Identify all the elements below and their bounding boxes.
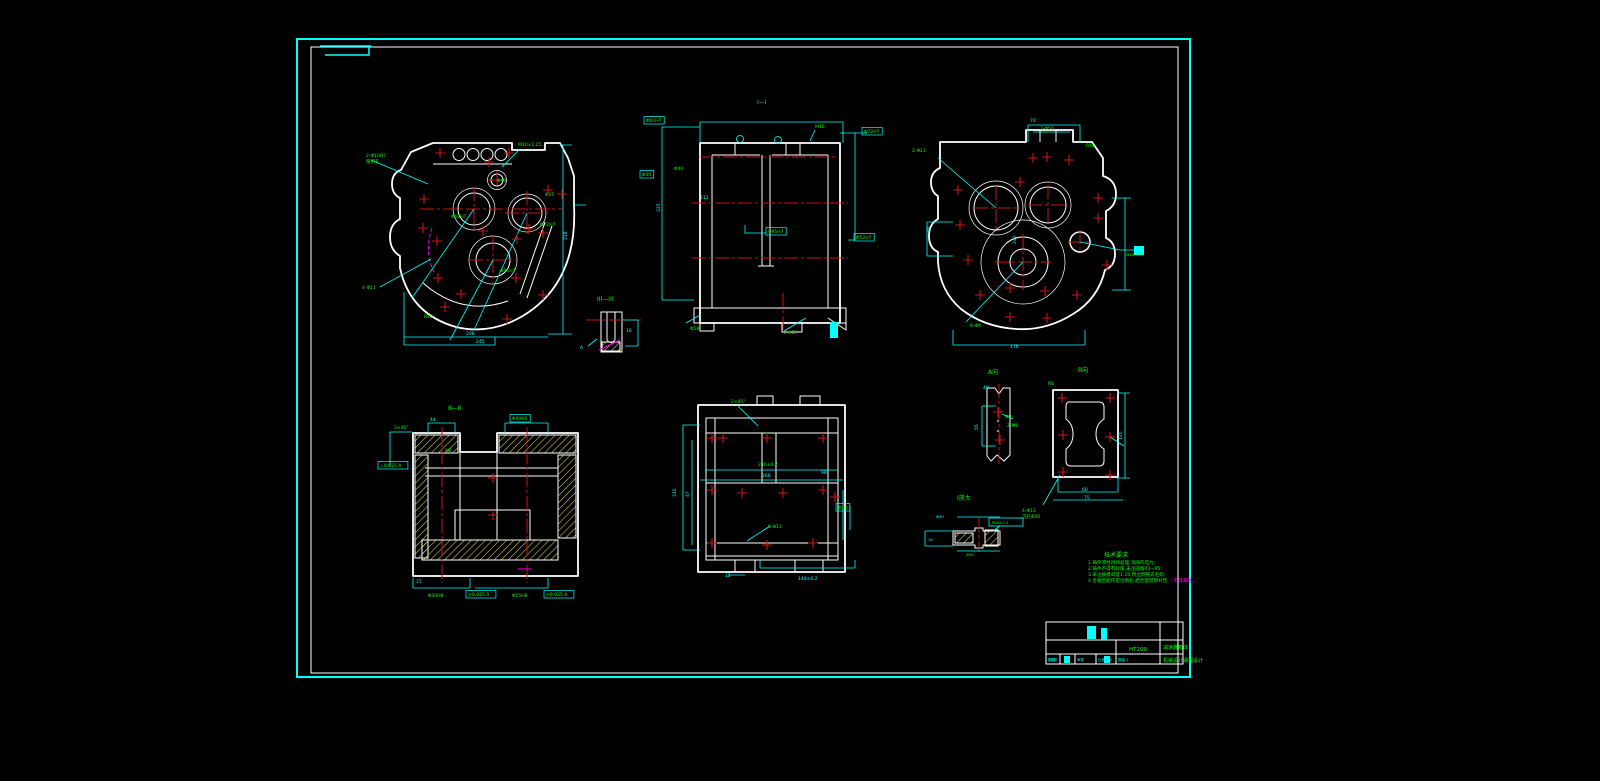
section-label: I放大 — [957, 494, 971, 502]
bolt-hole-cross — [993, 407, 1003, 417]
bolt-hole-cross — [433, 273, 443, 283]
dim-label: 2-Φ13 — [912, 148, 926, 154]
dim-label: 325 — [656, 203, 662, 212]
section-label: B向 — [1078, 366, 1088, 374]
dim-label: 120 — [1118, 431, 1124, 440]
section-view-2 — [390, 423, 578, 588]
dim-label: 242 — [1012, 235, 1018, 244]
dim-label: 2-Φ10H7 — [366, 153, 386, 159]
dim-label: 40 — [983, 385, 989, 391]
note-line: 2.铸件不得有砂眼,未注圆角R3~R5; — [1088, 565, 1162, 572]
dim-label: ⊥0.025 A — [380, 463, 402, 469]
bolt-hole-cross — [963, 255, 973, 265]
dim-label: R10 — [1086, 143, 1095, 149]
bolt-hole-cross — [762, 540, 772, 550]
dim-label: Φ72H7 — [540, 222, 556, 228]
dim-label: Φ40 — [497, 178, 506, 184]
dim-label: A — [580, 345, 584, 351]
note-line: 3.未注拔模斜度1:20,锐边倒钝去毛刺; — [1088, 571, 1166, 578]
dim-label: Φ40 — [674, 166, 683, 172]
dim-label: Φ62H7 — [646, 118, 662, 124]
dim-label: 206 — [466, 331, 475, 337]
bolt-hole-cross — [1042, 313, 1052, 323]
bolt-hole-cross — [1005, 312, 1015, 322]
dimension-annotations: I—III—IIIII—IIIA向B向I放大2-Φ10H7锥销孔M10×1.25… — [362, 99, 1144, 599]
bolt-hole-cross — [1042, 152, 1052, 162]
bolt-hole-cross — [778, 488, 788, 498]
bolt-hole-cross — [1102, 260, 1112, 270]
dim-label: 12 — [725, 573, 731, 579]
bolt-hole-cross — [1005, 283, 1015, 293]
dim-label: 176 — [1010, 344, 1019, 350]
dim-label: 锥销孔 — [366, 158, 380, 165]
cad-canvas: I—III—IIIII—IIIA向B向I放大2-Φ10H7锥销孔M10×1.25… — [0, 0, 1600, 781]
dim-label: 2-Φ50 — [1040, 126, 1054, 132]
dim-label: 6-Φ13 — [768, 524, 782, 530]
dim-label: M16×1.5 — [1126, 252, 1144, 257]
bolt-hole-cross — [737, 488, 747, 498]
bolt-hole-cross — [1058, 430, 1068, 440]
bolt-hole-cross — [1064, 155, 1074, 165]
title-block: HT200 减速器箱体 机械设计课程设计 制图 审核 比例 1:2 数量 1 共… — [1046, 622, 1203, 664]
section-label: A向 — [988, 368, 998, 376]
dim-label: M16×1.5 — [992, 521, 1008, 525]
dim-label: Φ62H7 — [451, 214, 467, 220]
dim-label: ◎0.025 A — [468, 592, 490, 598]
dim-label: Φ9 — [1005, 414, 1012, 420]
title-glyph-block — [1064, 656, 1070, 663]
section-label: III—III — [597, 296, 614, 303]
drawing-title: 减速器箱体 — [1163, 644, 1188, 651]
bolt-hole-cross — [435, 148, 445, 158]
dim-label: 70 — [1030, 118, 1036, 124]
bolt-hole-cross — [718, 433, 728, 443]
title-cell: 数量 1 — [1118, 657, 1128, 662]
dim-label: Φ25H8 — [512, 593, 528, 599]
section-label: I—I — [757, 99, 767, 106]
note-line: 4.合箱后配作定位销孔,结合面禁放衬垫 — [1088, 577, 1168, 584]
dim-label: ◎0.025 A — [546, 592, 568, 598]
dim-label: 2-M6 — [1007, 423, 1018, 429]
bolt-hole-cross — [1105, 432, 1115, 442]
dim-label: 75 — [1084, 495, 1090, 501]
slot-detail-view — [586, 312, 641, 352]
dim-label: Φ95H7 — [768, 229, 784, 235]
note-line: 1.铸件须经时效处理,消除内应力; — [1088, 559, 1156, 566]
bolt-hole-cross — [818, 433, 828, 443]
dim-label: 240±0.2 — [758, 462, 778, 468]
bolt-hole-cross — [1072, 290, 1082, 300]
notes-title: 技术要求 — [1104, 551, 1128, 559]
dim-label: 245 — [476, 339, 485, 345]
dim-label: 18 — [626, 328, 632, 334]
dim-label: 140±0.2 — [798, 576, 818, 582]
bolt-hole-cross — [1057, 393, 1067, 403]
dim-label: 47 — [685, 491, 691, 497]
dim-label: 98 — [821, 470, 827, 476]
drawing-subtitle: 机械设计课程设计 — [1163, 657, 1203, 664]
front-view — [371, 143, 586, 345]
bolt-hole-cross — [1105, 470, 1115, 480]
bolt-hole-cross — [975, 290, 985, 300]
dim-label: 18 — [928, 537, 933, 542]
dim-label: 4-Φ11 — [362, 285, 376, 291]
bolt-hole-cross — [762, 433, 772, 443]
bolt-hole-cross — [818, 485, 828, 495]
dim-label: 60 — [1082, 487, 1088, 493]
dim-label: Φ18 — [690, 326, 699, 332]
bolt-hole-cross — [1093, 193, 1103, 203]
bolt-hole-cross — [557, 189, 567, 199]
dim-label: 2×45° — [731, 399, 746, 405]
bolt-hole-cross — [1093, 213, 1103, 223]
bolt-hole-cross — [1028, 153, 1038, 163]
dim-label: 310 — [672, 488, 678, 497]
title-glyph-block — [1101, 628, 1107, 640]
bolt-hole-cross — [538, 290, 548, 300]
dim-label: 4-Φ13 — [1022, 508, 1036, 514]
dim-label: 15 — [416, 579, 422, 585]
dim-label: Φ30 — [936, 514, 944, 519]
dim-label: 218 — [563, 231, 569, 240]
dim-label: R15 — [424, 314, 433, 320]
dim-label: 2×45° — [784, 330, 799, 336]
dim-label: M16 — [815, 124, 825, 130]
drawing-svg: I—III—IIIII—IIIA向B向I放大2-Φ10H7锥销孔M10×1.25… — [0, 0, 1600, 781]
bolt-hole-cross — [1040, 286, 1050, 296]
bolt-hole-cross — [478, 226, 488, 236]
dim-label: 98 — [926, 226, 932, 232]
highlight-block — [830, 322, 838, 338]
dim-label: 沉孔Φ20 — [1022, 513, 1040, 520]
title-cell: 共1张 — [1048, 657, 1058, 662]
bolt-hole-cross — [484, 157, 494, 167]
bolt-hole-cross — [808, 538, 818, 548]
dim-label: 44 — [430, 417, 436, 423]
title-cell: 比例 1:2 — [1098, 657, 1112, 662]
dim-label: 112 — [700, 195, 709, 201]
dim-label: M8 — [445, 448, 452, 454]
dim-label: 3×45° — [394, 425, 409, 431]
bolt-hole-cross — [432, 236, 442, 246]
dim-label: Φ18 — [838, 505, 847, 511]
section-view-1 — [662, 122, 867, 338]
dim-label: Φ30 — [642, 172, 651, 178]
dim-label: Φ40K6 — [512, 416, 527, 422]
dim-label: 266 — [762, 473, 771, 479]
dim-label: Φ52H7 — [856, 235, 872, 241]
section-label: II—II — [448, 405, 461, 412]
bolt-hole-cross — [456, 289, 466, 299]
material-label: HT200 — [1129, 647, 1147, 653]
title-cell: 审核 — [1077, 657, 1085, 662]
dim-label: M10×1.25 — [518, 142, 542, 148]
dim-label: 6-Φ9 — [970, 323, 981, 329]
bolt-hole-cross — [1015, 177, 1025, 187]
dim-label: Φ95H7 — [500, 268, 516, 274]
title-glyph-block — [1087, 626, 1096, 639]
bolt-hole-cross — [953, 185, 963, 195]
dim-label: Φ25 — [545, 192, 554, 198]
technical-notes: 技术要求 1.铸件须经时效处理,消除内应力; 2.铸件不得有砂眼,未注圆角R3~… — [1088, 551, 1196, 584]
top-view — [683, 396, 855, 575]
dim-label: 55 — [974, 424, 980, 430]
dim-label: Φ30 — [966, 552, 974, 557]
inner-frame — [311, 47, 1178, 673]
bolt-hole-cross — [955, 220, 965, 230]
dim-label: Φ30H8 — [428, 593, 444, 599]
bolt-hole-cross — [440, 302, 450, 312]
dim-label: Φ72H7 — [864, 129, 880, 135]
bolt-hole-cross — [1105, 393, 1115, 403]
bolt-hole-cross — [524, 224, 534, 234]
bolt-hole-cross — [419, 194, 429, 204]
note-tail: ,不得漏油。 — [1172, 577, 1196, 584]
bolt-hole-cross — [418, 223, 428, 233]
dim-label: R8 — [1048, 381, 1054, 387]
bolt-hole-cross — [995, 435, 1005, 445]
